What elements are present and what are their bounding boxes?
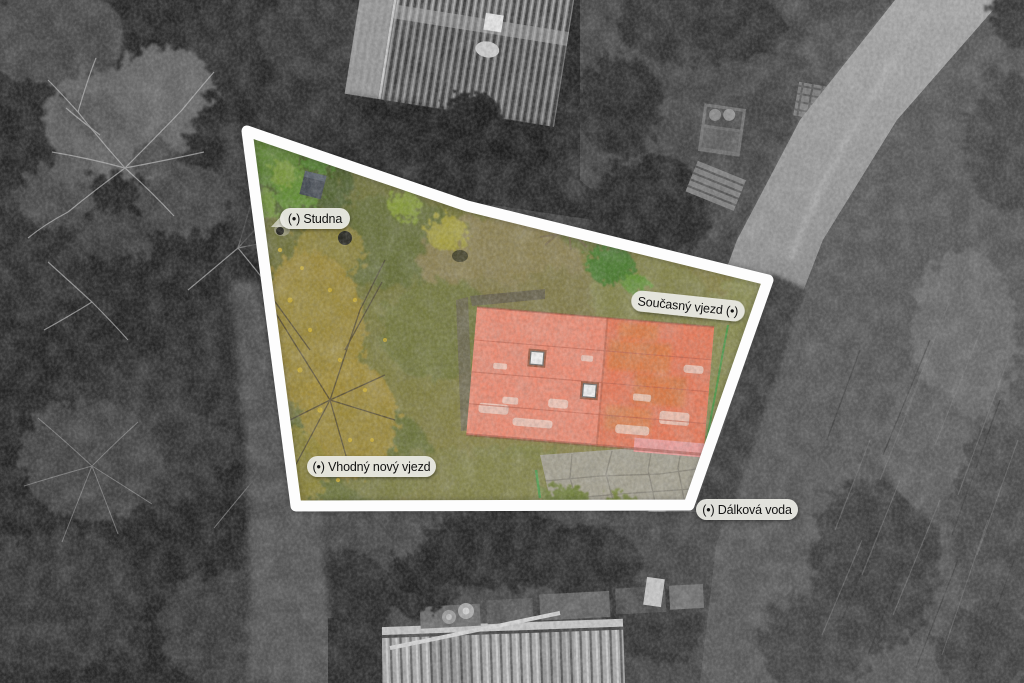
svg-text:(•) Vhodný nový vjezd: (•) Vhodný nový vjezd (313, 460, 431, 474)
svg-text:(•) Studna: (•) Studna (288, 212, 342, 226)
svg-text:(•) Dálková voda: (•) Dálková voda (702, 503, 792, 517)
